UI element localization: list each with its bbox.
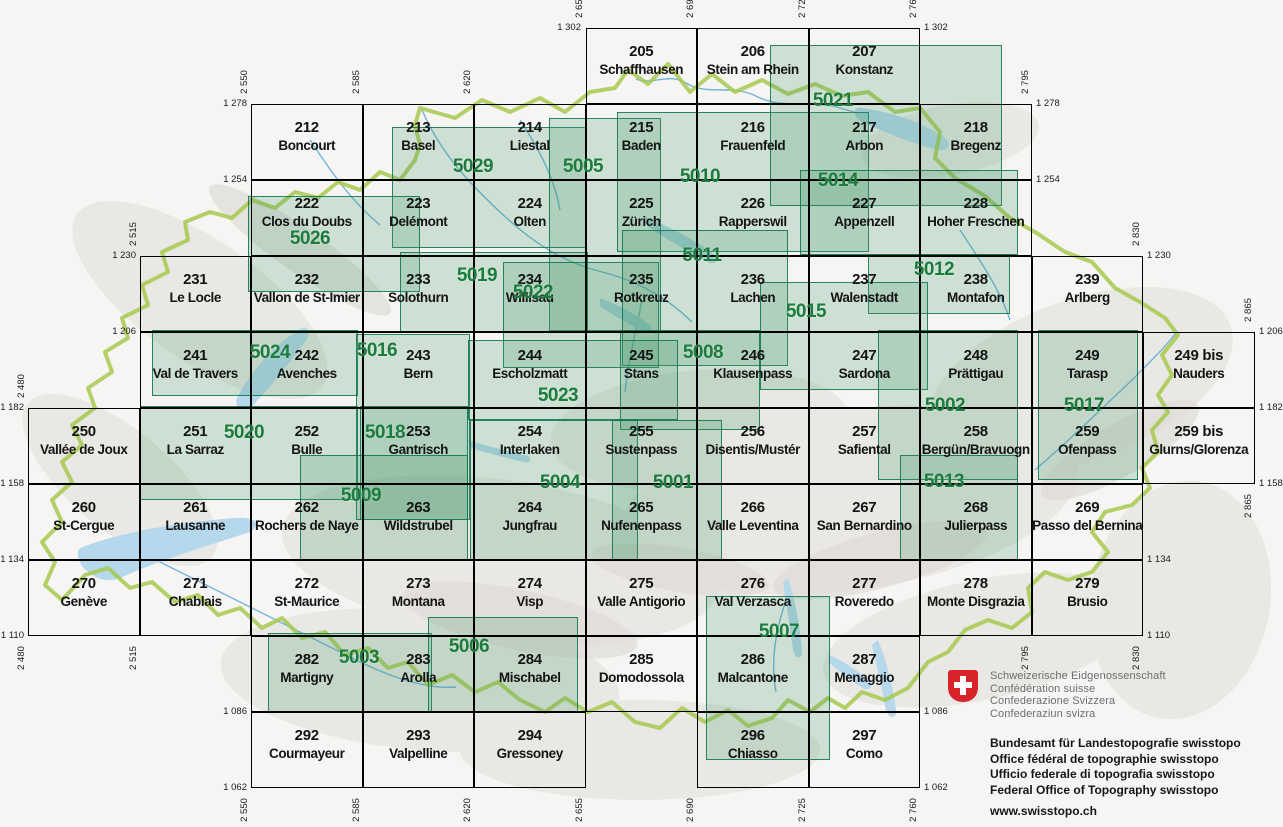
composite-label-5009[interactable]: 5009 (316, 485, 406, 507)
confederation-line-rm: Confederaziun svizra (990, 708, 1250, 721)
composite-label-5007[interactable]: 5007 (734, 621, 824, 643)
office-line-fr: Office fédéral de topographie swisstopo (990, 752, 1270, 768)
sheet-cell-287[interactable]: 287Menaggio (809, 636, 921, 712)
sheet-number: 245 (629, 346, 653, 365)
easting-label: 2 760 (908, 0, 920, 24)
composite-label-5002[interactable]: 5002 (900, 395, 990, 417)
sheet-number: 261 (183, 498, 207, 517)
easting-label: 2 585 (351, 792, 363, 827)
sheet-number: 258 (964, 422, 988, 441)
sheet-number: 292 (295, 726, 319, 745)
composite-label-5023[interactable]: 5023 (513, 385, 603, 407)
sheet-cell-268[interactable]: 268Julierpass (920, 484, 1032, 560)
northing-label: 1 134 (0, 554, 24, 566)
northing-label: 1 086 (924, 706, 970, 718)
northing-label: 1 086 (201, 706, 247, 718)
sheet-number: 274 (518, 574, 542, 593)
sheet-number: 273 (406, 574, 430, 593)
easting-label: 2 690 (685, 792, 697, 827)
sheet-number: 207 (852, 42, 876, 61)
sheet-name: Arbon (845, 137, 883, 154)
northing-label: 1 254 (201, 174, 247, 186)
sheet-cell-205[interactable]: 205Schaffhausen (586, 28, 698, 104)
office-line-it: Ufficio federale di topografia swisstopo (990, 767, 1270, 783)
sheet-cell-228[interactable]: 228Hoher Freschen (920, 180, 1032, 256)
sheet-name: Gressoney (497, 745, 563, 762)
sheet-number: 216 (741, 118, 765, 137)
sheet-number: 259 bis (1174, 422, 1223, 441)
sheet-name: Interlaken (500, 441, 560, 458)
sheet-cell-252[interactable]: 252Bulle (251, 408, 363, 484)
sheet-name: Avenches (277, 365, 337, 382)
sheet-name: Zürich (622, 213, 661, 230)
sheet-name: Appenzell (834, 213, 894, 230)
sheet-name: St-Cergue (53, 517, 114, 534)
composite-label-5006[interactable]: 5006 (424, 636, 514, 658)
easting-label: 2 515 (128, 216, 140, 252)
easting-label: 2 550 (239, 64, 251, 100)
sheet-name: Ofenpass (1058, 441, 1116, 458)
northing-label: 1 302 (924, 22, 970, 34)
sheet-number: 287 (852, 650, 876, 669)
swisstopo-url[interactable]: www.swisstopo.ch (990, 804, 1097, 818)
sheet-name: Nufenenpass (601, 517, 681, 534)
easting-label: 2 655 (574, 0, 586, 24)
composite-label-5018[interactable]: 5018 (340, 422, 430, 444)
sheet-cell-269[interactable]: 269Passo del Bernina (1032, 484, 1144, 560)
sheet-number: 228 (964, 194, 988, 213)
sheet-cell-271[interactable]: 271Chablais (140, 560, 252, 636)
northing-label: 1 206 (90, 326, 136, 338)
composite-label-5001[interactable]: 5001 (628, 472, 718, 494)
sheet-name: Bulle (291, 441, 322, 458)
sheet-cell-253[interactable]: 253Gantrisch (363, 408, 475, 484)
sheet-cell-266[interactable]: 266Valle Leventina (697, 484, 809, 560)
sheet-number: 263 (406, 498, 430, 517)
sheet-number: 250 (72, 422, 96, 441)
sheet-number: 257 (852, 422, 876, 441)
sheet-name: Baden (622, 137, 661, 154)
sheet-number: 259 (1075, 422, 1099, 441)
sheet-cell-218[interactable]: 218Bregenz (920, 104, 1032, 180)
northing-label: 1 206 (1259, 326, 1283, 338)
sheet-name: Domodossola (599, 669, 684, 686)
sheet-name: Konstanz (835, 61, 893, 78)
sheet-name: Rochers de Naye (255, 517, 359, 534)
sheet-name: Arlberg (1065, 289, 1110, 306)
sheet-cell-286[interactable]: 286Malcantone (697, 636, 809, 712)
sheet-number: 206 (741, 42, 765, 61)
easting-label: 2 515 (128, 640, 140, 676)
composite-label-5029[interactable]: 5029 (428, 156, 518, 178)
sheet-name: Escholzmatt (492, 365, 567, 382)
sheet-name: Rotkreuz (614, 289, 669, 306)
easting-label: 2 620 (462, 64, 474, 100)
sheet-name: Valle Leventina (707, 517, 799, 534)
sheet-number: 276 (741, 574, 765, 593)
composite-label-5003[interactable]: 5003 (314, 647, 404, 669)
sheet-name: Courmayeur (269, 745, 345, 762)
sheet-name: Val de Travers (153, 365, 238, 382)
sheet-number: 285 (629, 650, 653, 669)
sheet-number: 236 (741, 270, 765, 289)
sheet-name: Liestal (510, 137, 550, 154)
easting-label: 2 865 (1243, 292, 1255, 328)
sheet-number: 296 (741, 726, 765, 745)
sheet-name: Stein am Rhein (707, 61, 799, 78)
sheet-number: 223 (406, 194, 430, 213)
sheet-cell-259[interactable]: 259Ofenpass (1032, 408, 1144, 484)
northing-label: 1 110 (1147, 630, 1193, 642)
easting-label: 2 550 (239, 792, 251, 827)
sheet-number: 297 (852, 726, 876, 745)
sheet-cell-224[interactable]: 224Olten (474, 180, 586, 256)
sheet-name: Bern (404, 365, 433, 382)
sheet-name: Safiental (838, 441, 891, 458)
easting-label: 2 585 (351, 64, 363, 100)
easting-label: 2 480 (16, 368, 28, 404)
sheet-number: 275 (629, 574, 653, 593)
northing-label: 1 230 (1147, 250, 1193, 262)
sheet-name: Monte Disgrazia (927, 593, 1025, 610)
sheet-name: Montana (392, 593, 445, 610)
composite-label-5004[interactable]: 5004 (515, 472, 605, 494)
sheet-number: 267 (852, 498, 876, 517)
sheet-number: 235 (629, 270, 653, 289)
sheet-cell-261[interactable]: 261Lausanne (140, 484, 252, 560)
sheet-cell-265[interactable]: 265Nufenenpass (586, 484, 698, 560)
sheet-cell-217[interactable]: 217Arbon (809, 104, 921, 180)
sheet-cell-264[interactable]: 264Jungfrau (474, 484, 586, 560)
sheet-number: 266 (741, 498, 765, 517)
sheet-name: Tarasp (1067, 365, 1108, 382)
sheet-cell-250[interactable]: 250Vallée de Joux (28, 408, 140, 484)
sheet-name: Menaggio (834, 669, 894, 686)
sheet-name: Valpelline (389, 745, 447, 762)
sheet-cell-278[interactable]: 278Monte Disgrazia (920, 560, 1032, 636)
map-index-canvas: Schweizerische Eidgenossenschaft Confédé… (0, 0, 1283, 827)
composite-label-5021[interactable]: 5021 (788, 90, 878, 112)
northing-label: 1 134 (1147, 554, 1193, 566)
sheet-number: 252 (295, 422, 319, 441)
easting-label: 2 655 (574, 792, 586, 827)
sheet-number: 213 (406, 118, 430, 137)
easting-label: 2 725 (797, 792, 809, 827)
sheet-name: Sardona (839, 365, 890, 382)
composite-label-5017[interactable]: 5017 (1039, 395, 1129, 417)
sheet-number: 225 (629, 194, 653, 213)
sheet-name: Basel (401, 137, 435, 154)
office-names: Bundesamt für Landestopografie swisstopo… (990, 736, 1270, 798)
sheet-cell-251[interactable]: 251La Sarraz (140, 408, 252, 484)
sheet-name: Stans (624, 365, 659, 382)
sheet-cell-272[interactable]: 272St-Maurice (251, 560, 363, 636)
sheet-name: Montafon (947, 289, 1005, 306)
sheet-number: 255 (629, 422, 653, 441)
office-line-en: Federal Office of Topography swisstopo (990, 783, 1270, 799)
northing-label: 1 182 (1259, 402, 1283, 414)
sheet-number: 226 (741, 194, 765, 213)
sheet-cell-259-bis[interactable]: 259 bisGlurns/Glorenza (1143, 408, 1255, 484)
sheet-name: Visp (516, 593, 543, 610)
sheet-number: 249 bis (1174, 346, 1223, 365)
sheet-number: 284 (518, 650, 542, 669)
composite-label-5020[interactable]: 5020 (199, 422, 289, 444)
sheet-cell-212[interactable]: 212Boncourt (251, 104, 363, 180)
sheet-number: 212 (295, 118, 319, 137)
sheet-cell-277[interactable]: 277Roveredo (809, 560, 921, 636)
sheet-cell-275[interactable]: 275Valle Antigorio (586, 560, 698, 636)
sheet-cell-235[interactable]: 235Rotkreuz (586, 256, 698, 332)
sheet-name: Passo del Bernina (1032, 517, 1142, 534)
northing-label: 1 062 (924, 782, 970, 794)
sheet-name: Chablais (169, 593, 222, 610)
composite-label-5026[interactable]: 5026 (265, 228, 355, 250)
sheet-name: Vallée de Joux (40, 441, 127, 458)
composite-label-5005[interactable]: 5005 (538, 156, 628, 178)
sheet-name: Brusio (1067, 593, 1107, 610)
sheet-cell-260[interactable]: 260St-Cergue (28, 484, 140, 560)
sheet-name: Val Verzasca (715, 593, 791, 610)
sheet-name: Martigny (280, 669, 333, 686)
composite-label-5010[interactable]: 5010 (655, 166, 745, 188)
sheet-name: Bregenz (951, 137, 1001, 154)
easting-label: 2 865 (1243, 488, 1255, 524)
composite-label-5014[interactable]: 5014 (793, 170, 883, 192)
sheet-name: St-Maurice (274, 593, 339, 610)
easting-label: 2 620 (462, 792, 474, 827)
sheet-cell-267[interactable]: 267San Bernardino (809, 484, 921, 560)
sheet-name: Arolla (400, 669, 436, 686)
office-line-de: Bundesamt für Landestopografie swisstopo (990, 736, 1270, 752)
sheet-number: 272 (295, 574, 319, 593)
sheet-number: 239 (1075, 270, 1099, 289)
sheet-name: Genève (61, 593, 107, 610)
sheet-number: 232 (295, 270, 319, 289)
sheet-name: Malcantone (718, 669, 788, 686)
sheet-number: 294 (518, 726, 542, 745)
sheet-number: 271 (183, 574, 207, 593)
sheet-number: 293 (406, 726, 430, 745)
confederation-line-fr: Confédération suisse (990, 683, 1250, 696)
sheet-name: Nauders (1173, 365, 1224, 382)
sheet-number: 286 (741, 650, 765, 669)
sheet-number: 256 (741, 422, 765, 441)
sheet-number: 244 (518, 346, 542, 365)
sheet-cell-274[interactable]: 274Visp (474, 560, 586, 636)
composite-label-5022[interactable]: 5022 (488, 282, 578, 304)
sheet-name: Olten (513, 213, 546, 230)
sheet-name: Delémont (389, 213, 447, 230)
sheet-number: 278 (964, 574, 988, 593)
sheet-number: 233 (406, 270, 430, 289)
confederation-line-de: Schweizerische Eidgenossenschaft (990, 670, 1250, 683)
sheet-cell-279[interactable]: 279Brusio (1032, 560, 1144, 636)
sheet-name: Jungfrau (502, 517, 557, 534)
sheet-cell-239[interactable]: 239Arlberg (1032, 256, 1144, 332)
composite-label-5013[interactable]: 5013 (899, 471, 989, 493)
sheet-name: Boncourt (278, 137, 335, 154)
sheet-number: 241 (183, 346, 207, 365)
sheet-cell-232[interactable]: 232Vallon de St-Imier (251, 256, 363, 332)
sheet-name: Wildstrubel (384, 517, 453, 534)
sheet-number: 227 (852, 194, 876, 213)
sheet-name: Valle Antigorio (597, 593, 685, 610)
sheet-number: 231 (183, 270, 207, 289)
easting-label: 2 690 (685, 0, 697, 24)
sheet-name: Glurns/Glorenza (1149, 441, 1248, 458)
composite-label-5016[interactable]: 5016 (332, 340, 422, 362)
sheet-name: Hoher Freschen (927, 213, 1024, 230)
sheet-name: Como (846, 745, 883, 762)
sheet-name: Schaffhausen (599, 61, 683, 78)
swiss-coat-of-arms-icon (948, 670, 978, 702)
sheet-number: 264 (518, 498, 542, 517)
sheet-name: Rapperswil (719, 213, 787, 230)
sheet-cell-297[interactable]: 297Como (809, 712, 921, 788)
sheet-name: Julierpass (944, 517, 1007, 534)
sheet-cell-223[interactable]: 223Delémont (363, 180, 475, 256)
easting-label: 2 830 (1131, 216, 1143, 252)
sheet-name: Roveredo (835, 593, 894, 610)
sheet-number: 214 (518, 118, 542, 137)
sheet-name: Vallon de St-Imier (254, 289, 360, 306)
northing-label: 1 254 (1036, 174, 1082, 186)
sheet-number: 270 (72, 574, 96, 593)
confederation-names: Schweizerische Eidgenossenschaft Confédé… (990, 670, 1250, 720)
sheet-number: 218 (964, 118, 988, 137)
sheet-number: 237 (852, 270, 876, 289)
composite-label-5008[interactable]: 5008 (658, 342, 748, 364)
easting-label: 2 760 (908, 792, 920, 827)
composite-label-5012[interactable]: 5012 (889, 259, 979, 281)
sheet-name: Le Locle (169, 289, 221, 306)
sheet-number: 247 (852, 346, 876, 365)
sheet-number: 217 (852, 118, 876, 137)
sheet-cell-273[interactable]: 273Montana (363, 560, 475, 636)
sheet-name: Chiasso (728, 745, 778, 762)
sheet-cell-294[interactable]: 294Gressoney (474, 712, 586, 788)
northing-label: 1 158 (0, 478, 24, 490)
sheet-number: 279 (1075, 574, 1099, 593)
sheet-name: Solothurn (388, 289, 448, 306)
sheet-number: 215 (629, 118, 653, 137)
sheet-cell-270[interactable]: 270Genève (28, 560, 140, 636)
easting-label: 2 725 (797, 0, 809, 24)
composite-label-5015[interactable]: 5015 (761, 301, 851, 323)
easting-label: 2 480 (16, 640, 28, 676)
sheet-number: 268 (964, 498, 988, 517)
sheet-cell-292[interactable]: 292Courmayeur (251, 712, 363, 788)
sheet-number: 248 (964, 346, 988, 365)
sheet-name: Klausenpass (713, 365, 792, 382)
composite-label-5011[interactable]: 5011 (657, 245, 747, 267)
sheet-cell-249-bis[interactable]: 249 bisNauders (1143, 332, 1255, 408)
sheet-number: 249 (1075, 346, 1099, 365)
sheet-number: 260 (72, 498, 96, 517)
northing-label: 1 158 (1259, 478, 1283, 490)
confederation-line-it: Confederazione Svizzera (990, 695, 1250, 708)
sheet-number: 277 (852, 574, 876, 593)
sheet-cell-293[interactable]: 293Valpelline (363, 712, 475, 788)
sheet-number: 265 (629, 498, 653, 517)
sheet-number: 224 (518, 194, 542, 213)
sheet-name: Mischabel (499, 669, 561, 686)
composite-label-5024[interactable]: 5024 (225, 342, 315, 364)
sheet-number: 254 (518, 422, 542, 441)
easting-label: 2 795 (1020, 64, 1032, 100)
sheet-name: Lausanne (165, 517, 225, 534)
sheet-name: Bergün/Bravuogn (922, 441, 1030, 458)
sheet-name: San Bernardino (817, 517, 912, 534)
sheet-name: Sustenpass (605, 441, 677, 458)
sheet-name: Disentis/Mustér (705, 441, 800, 458)
sheet-number: 222 (295, 194, 319, 213)
sheet-name: Frauenfeld (720, 137, 785, 154)
sheet-cell-285[interactable]: 285Domodossola (586, 636, 698, 712)
sheet-name: Prättigau (948, 365, 1003, 382)
sheet-cell-231[interactable]: 231Le Locle (140, 256, 252, 332)
northing-label: 1 278 (1036, 98, 1082, 110)
sheet-number: 269 (1075, 498, 1099, 517)
sheet-cell-296[interactable]: 296Chiasso (697, 712, 809, 788)
sheet-number: 205 (629, 42, 653, 61)
